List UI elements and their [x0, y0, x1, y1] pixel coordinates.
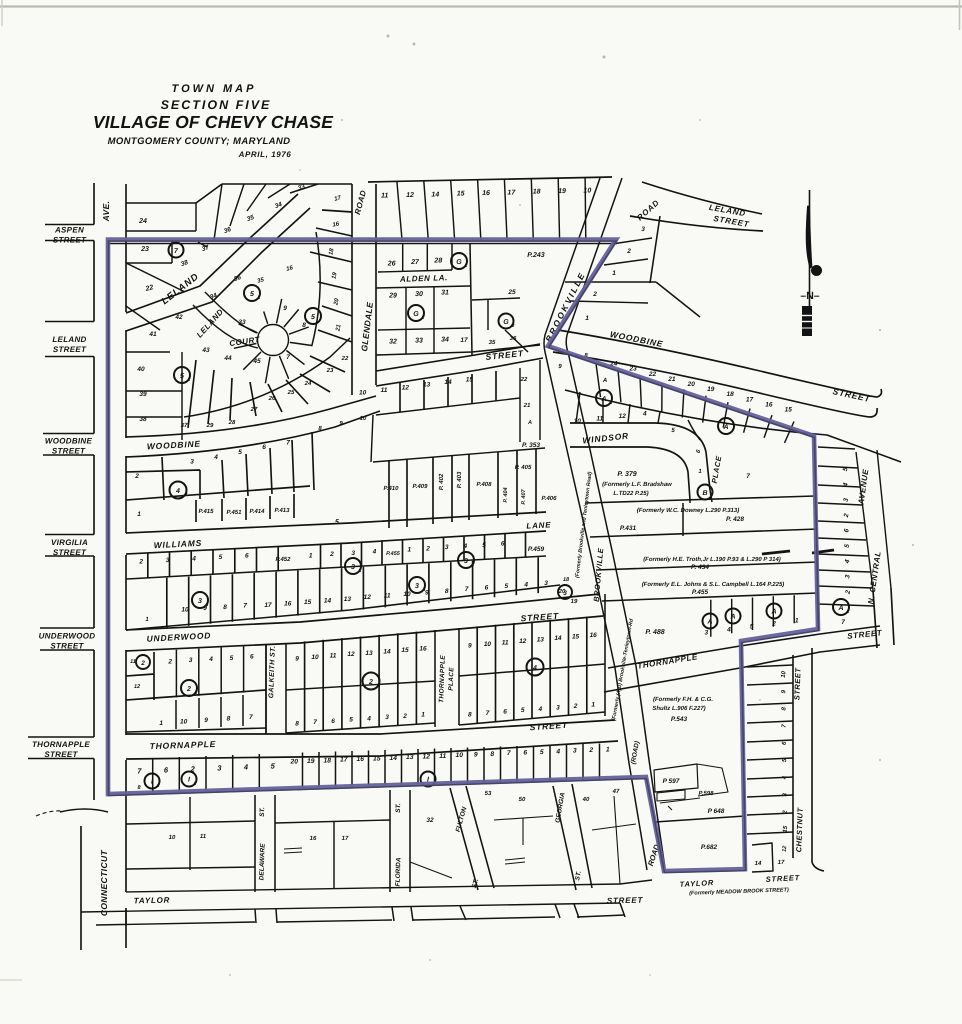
svg-text:7: 7: [243, 603, 247, 610]
svg-text:UNDERWOOD: UNDERWOOD: [39, 632, 96, 641]
svg-text:P.455: P.455: [386, 551, 401, 557]
svg-text:9: 9: [283, 305, 287, 312]
svg-text:STREET: STREET: [52, 447, 86, 456]
svg-text:10: 10: [180, 719, 188, 726]
svg-text:11: 11: [384, 593, 391, 600]
svg-text:1: 1: [408, 546, 412, 553]
svg-text:4: 4: [463, 543, 468, 550]
svg-text:PLACE: PLACE: [448, 667, 456, 691]
svg-text:(Formerly E.L. Johns & S.L. Ca: (Formerly E.L. Johns & S.L. Campbell L.1…: [642, 581, 785, 588]
svg-text:53: 53: [485, 790, 492, 797]
svg-text:18: 18: [726, 391, 734, 398]
svg-text:CONNECTICUT: CONNECTICUT: [99, 849, 109, 916]
svg-text:34: 34: [441, 337, 449, 344]
svg-text:ST.: ST.: [395, 803, 402, 813]
svg-text:LANE: LANE: [526, 520, 551, 530]
svg-text:3: 3: [704, 630, 708, 637]
svg-text:P 597: P 597: [663, 778, 680, 785]
svg-text:P.413: P.413: [275, 507, 291, 514]
svg-text:13: 13: [406, 754, 414, 761]
svg-text:(Formerly L.F. Bradshaw: (Formerly L.F. Bradshaw: [602, 481, 672, 488]
svg-text:2: 2: [167, 658, 172, 665]
svg-text:Shultz L.906 F.227): Shultz L.906 F.227): [652, 705, 705, 712]
svg-text:3: 3: [189, 657, 193, 664]
svg-text:17: 17: [340, 757, 348, 764]
svg-text:(Formerly W.C. Downey L.290: (Formerly W.C. Downey L.290 P.313): [637, 507, 739, 514]
svg-text:14: 14: [383, 648, 391, 655]
svg-text:P. 403: P. 403: [456, 471, 463, 488]
svg-text:15: 15: [785, 406, 793, 413]
svg-text:2: 2: [588, 747, 593, 754]
svg-text:19: 19: [558, 188, 566, 195]
svg-text:3: 3: [385, 714, 389, 721]
svg-text:23: 23: [326, 367, 334, 374]
svg-text:A: A: [527, 420, 532, 426]
svg-text:THORNAPPLE: THORNAPPLE: [32, 740, 90, 749]
svg-text:10: 10: [484, 641, 492, 648]
svg-text:9: 9: [425, 589, 429, 596]
svg-text:2: 2: [138, 558, 143, 565]
svg-text:11: 11: [330, 653, 337, 660]
svg-text:11: 11: [502, 639, 509, 646]
svg-text:4: 4: [532, 665, 537, 672]
svg-text:5: 5: [482, 542, 486, 549]
svg-text:10: 10: [780, 670, 788, 678]
svg-text:2: 2: [573, 703, 578, 710]
svg-text:8: 8: [227, 715, 231, 722]
svg-text:P. 488: P. 488: [645, 629, 664, 636]
svg-text:5: 5: [335, 519, 339, 526]
svg-text:A: A: [706, 619, 712, 626]
svg-text:3: 3: [351, 550, 355, 557]
svg-text:5: 5: [505, 583, 509, 590]
svg-text:1: 1: [159, 720, 163, 727]
svg-text:12: 12: [519, 638, 527, 645]
svg-text:4: 4: [642, 410, 647, 417]
svg-text:20: 20: [687, 381, 696, 388]
svg-text:19: 19: [571, 598, 578, 605]
svg-text:3: 3: [573, 748, 577, 755]
svg-text:19: 19: [307, 758, 315, 765]
svg-text:18: 18: [533, 189, 541, 196]
svg-text:16: 16: [357, 756, 365, 763]
svg-text:14: 14: [390, 755, 398, 762]
svg-text:3: 3: [206, 602, 209, 608]
svg-text:P.415: P.415: [199, 508, 215, 515]
svg-text:16: 16: [590, 632, 598, 639]
svg-text:2: 2: [592, 291, 597, 298]
svg-text:4: 4: [422, 587, 426, 593]
svg-text:ALDEN LA.: ALDEN LA.: [399, 273, 448, 284]
svg-text:14: 14: [324, 597, 332, 604]
svg-text:27: 27: [410, 259, 420, 266]
svg-text:A: A: [722, 424, 728, 431]
svg-text:4: 4: [191, 556, 196, 563]
svg-text:25: 25: [287, 389, 295, 396]
svg-text:A: A: [729, 614, 735, 621]
svg-text:4: 4: [726, 627, 731, 634]
svg-text:9: 9: [204, 717, 208, 724]
svg-text:17: 17: [264, 602, 272, 609]
svg-text:6: 6: [250, 654, 254, 661]
svg-text:2: 2: [771, 621, 776, 628]
svg-text:1: 1: [157, 783, 160, 789]
svg-text:40: 40: [136, 366, 145, 373]
svg-text:12: 12: [347, 651, 355, 658]
svg-text:8: 8: [302, 322, 306, 329]
svg-text:11: 11: [381, 193, 388, 200]
svg-text:37: 37: [181, 422, 188, 429]
svg-text:26: 26: [387, 260, 396, 267]
svg-text:13: 13: [344, 596, 352, 603]
svg-text:43: 43: [201, 347, 210, 354]
svg-text:L.TD22 P.25): L.TD22 P.25): [613, 490, 648, 497]
svg-text:3: 3: [166, 557, 170, 564]
svg-text:10: 10: [360, 415, 367, 422]
svg-text:13: 13: [537, 636, 545, 643]
svg-text:1: 1: [610, 400, 613, 406]
svg-text:16: 16: [284, 601, 292, 608]
svg-text:4: 4: [366, 715, 371, 722]
svg-text:P.409: P.409: [413, 483, 429, 490]
svg-text:G: G: [413, 311, 419, 318]
svg-text:14: 14: [444, 379, 452, 386]
svg-text:16: 16: [765, 401, 773, 408]
svg-text:38: 38: [139, 416, 147, 423]
svg-text:STREET: STREET: [50, 642, 84, 651]
svg-text:WOODBINE: WOODBINE: [45, 437, 93, 446]
svg-text:A: A: [837, 605, 843, 612]
svg-text:11: 11: [596, 415, 603, 422]
svg-text:–N–: –N–: [800, 290, 819, 302]
svg-text:STREET: STREET: [607, 896, 644, 906]
svg-text:5: 5: [349, 717, 353, 724]
svg-text:26: 26: [268, 395, 276, 402]
svg-text:P. 405: P. 405: [515, 464, 532, 471]
svg-text:STREET: STREET: [53, 345, 87, 354]
svg-text:23: 23: [140, 246, 149, 253]
svg-text:1: 1: [258, 295, 261, 301]
svg-text:5: 5: [750, 624, 754, 631]
svg-text:4: 4: [372, 549, 377, 556]
svg-text:VIRGILIA: VIRGILIA: [51, 538, 88, 547]
svg-text:16: 16: [482, 190, 490, 197]
svg-text:16: 16: [310, 835, 317, 842]
svg-text:2: 2: [421, 315, 425, 321]
svg-text:15: 15: [304, 599, 312, 606]
svg-text:P.682: P.682: [701, 844, 718, 851]
svg-text:2: 2: [402, 713, 407, 720]
svg-text:12: 12: [402, 384, 410, 391]
svg-text:STREET: STREET: [765, 873, 800, 884]
svg-text:2: 2: [186, 686, 191, 693]
svg-text:1: 1: [606, 746, 610, 753]
svg-text:7: 7: [746, 473, 750, 480]
svg-text:3: 3: [445, 544, 449, 551]
svg-text:APRIL, 1976: APRIL, 1976: [238, 150, 292, 159]
svg-text:1: 1: [309, 552, 313, 559]
svg-text:3: 3: [198, 598, 202, 605]
svg-text:50: 50: [519, 796, 526, 803]
svg-text:2: 2: [134, 473, 139, 480]
svg-text:4: 4: [243, 763, 249, 772]
svg-text:P. 434: P. 434: [691, 564, 709, 571]
svg-text:33: 33: [238, 319, 246, 326]
svg-text:2: 2: [140, 660, 145, 667]
svg-text:1: 1: [137, 511, 141, 518]
svg-text:G: G: [503, 319, 509, 326]
svg-text:3: 3: [641, 226, 645, 233]
svg-text:45: 45: [252, 358, 261, 365]
svg-text:P.410: P.410: [384, 485, 400, 492]
svg-text:3: 3: [563, 590, 567, 597]
svg-text:11: 11: [439, 753, 446, 760]
svg-text:4: 4: [213, 454, 218, 461]
svg-text:2: 2: [626, 248, 631, 255]
svg-text:14: 14: [755, 860, 762, 867]
svg-text:8: 8: [468, 711, 472, 718]
svg-text:17: 17: [460, 337, 468, 344]
svg-text:13: 13: [423, 382, 431, 389]
svg-text:25: 25: [507, 289, 516, 296]
svg-text:30: 30: [415, 291, 423, 298]
svg-text:13: 13: [365, 650, 373, 657]
svg-text:18: 18: [324, 757, 332, 764]
svg-text:5: 5: [238, 449, 242, 456]
svg-text:P. 379: P. 379: [617, 471, 636, 478]
svg-text:33: 33: [415, 338, 423, 345]
svg-text:P.455: P.455: [692, 589, 709, 596]
svg-text:5: 5: [250, 291, 254, 298]
svg-text:15: 15: [401, 647, 409, 654]
svg-text:1: 1: [421, 712, 425, 719]
svg-text:3: 3: [415, 583, 419, 590]
svg-text:47: 47: [612, 788, 620, 795]
svg-text:11: 11: [381, 387, 388, 394]
svg-text:19: 19: [707, 386, 715, 393]
svg-text:17: 17: [746, 396, 754, 403]
svg-text:7: 7: [465, 586, 469, 593]
svg-text:36: 36: [510, 335, 517, 342]
svg-text:2: 2: [368, 679, 373, 686]
svg-text:2: 2: [184, 492, 188, 498]
svg-text:P.414: P.414: [250, 508, 266, 515]
svg-text:MONTGOMERY COUNTY; MARYLAND: MONTGOMERY COUNTY; MARYLAND: [108, 136, 291, 147]
svg-text:40: 40: [582, 796, 590, 803]
svg-text:3: 3: [464, 558, 468, 565]
svg-text:14: 14: [554, 635, 562, 642]
svg-text:CHESTNUT: CHESTNUT: [794, 806, 805, 852]
svg-text:12: 12: [619, 413, 627, 420]
svg-text:1: 1: [465, 263, 468, 269]
svg-text:4: 4: [175, 488, 180, 495]
svg-text:18: 18: [563, 577, 570, 583]
svg-text:STREET: STREET: [53, 236, 87, 245]
svg-text:9: 9: [295, 655, 299, 662]
svg-text:15: 15: [457, 191, 465, 198]
svg-text:15: 15: [373, 755, 381, 762]
svg-text:5: 5: [180, 373, 184, 380]
svg-text:P.543: P.543: [671, 716, 688, 723]
svg-text:3: 3: [190, 459, 194, 466]
svg-text:5: 5: [521, 707, 525, 714]
svg-text:3: 3: [512, 323, 515, 329]
svg-text:1: 1: [795, 618, 799, 625]
svg-text:10: 10: [311, 654, 319, 661]
svg-text:29: 29: [206, 422, 214, 429]
svg-text:G: G: [456, 259, 462, 266]
svg-text:31: 31: [441, 290, 449, 297]
svg-text:44: 44: [223, 355, 232, 362]
svg-text:10: 10: [181, 606, 189, 613]
svg-text:10: 10: [583, 187, 591, 194]
svg-text:1: 1: [359, 568, 362, 574]
svg-text:12: 12: [134, 684, 140, 690]
svg-text:LELAND: LELAND: [52, 335, 86, 344]
svg-text:P.452: P.452: [276, 556, 292, 563]
svg-text:7: 7: [286, 439, 290, 446]
svg-text:6: 6: [503, 709, 507, 716]
svg-text:3: 3: [544, 580, 548, 587]
svg-text:P. 402: P. 402: [438, 473, 445, 490]
svg-text:8: 8: [295, 720, 299, 727]
svg-text:11: 11: [130, 659, 136, 665]
svg-text:P.408: P.408: [477, 481, 493, 488]
svg-text:P. 404: P. 404: [503, 487, 509, 502]
svg-text:2: 2: [846, 609, 850, 615]
svg-text:P.451: P.451: [227, 509, 243, 516]
svg-text:3: 3: [351, 564, 355, 571]
svg-text:6: 6: [262, 444, 266, 451]
svg-text:P.406: P.406: [542, 495, 558, 502]
svg-text:1: 1: [585, 315, 589, 322]
svg-text:2: 2: [425, 545, 430, 552]
svg-text:11: 11: [200, 833, 207, 840]
svg-text:32: 32: [426, 817, 434, 824]
svg-text:VILLAGE OF CHEVY CHASE: VILLAGE OF CHEVY CHASE: [93, 112, 334, 132]
svg-text:10: 10: [169, 834, 176, 841]
svg-text:7: 7: [313, 719, 317, 726]
svg-text:22: 22: [341, 355, 349, 362]
svg-text:SECTION FIVE: SECTION FIVE: [161, 98, 272, 112]
svg-text:7: 7: [286, 354, 290, 361]
svg-text:10: 10: [359, 390, 367, 397]
svg-text:TAYLOR: TAYLOR: [679, 878, 714, 889]
svg-text:5: 5: [540, 749, 544, 756]
svg-text:10: 10: [403, 591, 411, 598]
svg-text:4: 4: [555, 748, 560, 755]
svg-text:14: 14: [431, 191, 439, 198]
svg-text:7: 7: [486, 710, 490, 717]
svg-text:17: 17: [778, 859, 785, 866]
svg-text:9: 9: [468, 642, 472, 649]
svg-text:TOWN MAP: TOWN MAP: [172, 83, 257, 95]
svg-text:15: 15: [572, 633, 580, 640]
svg-text:1: 1: [591, 702, 595, 709]
svg-text:TAYLOR: TAYLOR: [134, 896, 171, 906]
svg-text:5: 5: [230, 655, 234, 662]
svg-text:28: 28: [433, 258, 442, 265]
svg-text:4: 4: [208, 656, 213, 663]
svg-text:42: 42: [174, 314, 183, 321]
svg-text:P 648: P 648: [708, 808, 725, 815]
svg-text:24: 24: [138, 218, 147, 225]
svg-text:3: 3: [378, 683, 381, 689]
svg-text:ST.: ST.: [259, 807, 266, 817]
svg-text:2: 2: [187, 377, 191, 383]
svg-text:2: 2: [194, 690, 198, 696]
svg-text:21: 21: [523, 402, 531, 409]
svg-text:4: 4: [538, 706, 543, 713]
svg-text:1: 1: [612, 270, 616, 277]
svg-text:22: 22: [648, 371, 657, 378]
svg-text:10: 10: [456, 752, 464, 759]
svg-text:12: 12: [364, 594, 372, 601]
svg-text:DELAWARE: DELAWARE: [258, 843, 266, 881]
svg-text:STREET: STREET: [53, 548, 87, 557]
svg-text:(Formerly H.E. Troth,Jr L.190: (Formerly H.E. Troth,Jr L.190 P.93 & L.2…: [643, 556, 781, 563]
svg-text:8: 8: [490, 751, 494, 758]
svg-text:41: 41: [148, 331, 157, 338]
svg-text:24: 24: [304, 380, 312, 387]
svg-text:17: 17: [342, 835, 349, 842]
svg-text:12: 12: [406, 192, 414, 199]
svg-text:P. 407: P. 407: [521, 488, 527, 504]
svg-text:7: 7: [841, 619, 845, 626]
svg-text:27: 27: [250, 406, 258, 413]
svg-text:A: A: [770, 609, 776, 616]
svg-text:FLORIDA: FLORIDA: [394, 857, 402, 886]
svg-text:39: 39: [139, 391, 147, 398]
svg-text:7: 7: [507, 750, 511, 757]
svg-text:6: 6: [331, 718, 335, 725]
svg-text:STREET: STREET: [792, 667, 802, 701]
svg-text:2: 2: [329, 551, 334, 558]
svg-text:A: A: [602, 377, 607, 384]
svg-text:15: 15: [782, 825, 790, 833]
svg-text:P.459: P.459: [528, 546, 545, 553]
svg-text:2: 2: [193, 781, 197, 787]
svg-text:6: 6: [501, 541, 505, 548]
svg-text:8: 8: [445, 588, 449, 595]
svg-text:P. 353: P. 353: [522, 442, 540, 449]
svg-text:8: 8: [223, 604, 227, 611]
svg-text:12: 12: [423, 753, 431, 760]
svg-text:ASPEN: ASPEN: [54, 226, 84, 235]
svg-text:P.431: P.431: [620, 525, 637, 532]
svg-text:22: 22: [520, 376, 528, 383]
svg-text:9: 9: [474, 752, 478, 759]
svg-text:B: B: [702, 490, 707, 497]
svg-text:5: 5: [311, 314, 315, 321]
svg-text:3: 3: [556, 704, 560, 711]
svg-text:6: 6: [485, 585, 489, 592]
svg-text:28: 28: [228, 419, 236, 426]
svg-text:35: 35: [489, 339, 496, 346]
svg-text:15: 15: [466, 376, 474, 383]
svg-text:20: 20: [290, 759, 299, 766]
svg-text:6: 6: [523, 750, 527, 757]
svg-text:5: 5: [219, 554, 223, 561]
svg-text:6: 6: [245, 553, 249, 560]
svg-text:P.243: P.243: [527, 252, 544, 259]
svg-text:21: 21: [667, 376, 676, 383]
svg-text:(Formerly F.H. & C.G.: (Formerly F.H. & C.G.: [653, 696, 713, 703]
svg-text:16: 16: [419, 646, 427, 653]
svg-text:17: 17: [507, 189, 516, 196]
svg-text:32: 32: [389, 339, 397, 346]
svg-text:P. 428: P. 428: [726, 516, 744, 523]
